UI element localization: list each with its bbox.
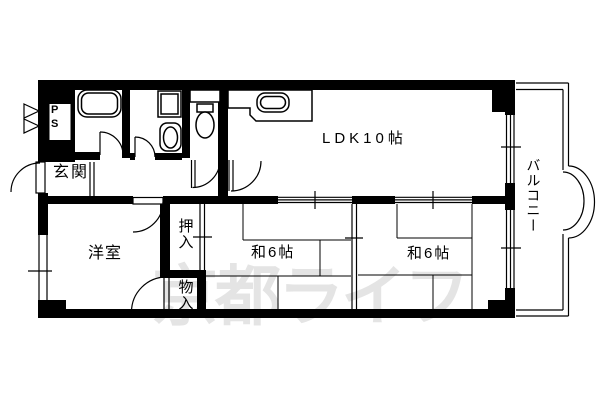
bathtub (78, 90, 121, 117)
front-door-leaf (36, 162, 45, 193)
fixtures (78, 90, 312, 151)
balcony-label: バルコニー (525, 158, 540, 264)
watermark: 京都ライフ (152, 260, 467, 333)
toilet (190, 90, 220, 138)
western-room-label: 洋室 (88, 245, 122, 263)
closet-label: 押入 (176, 218, 193, 260)
floorplan-drawing (0, 0, 600, 400)
meter-box-icon (24, 104, 39, 133)
washing-machine-pan (158, 91, 181, 117)
ldk-label: LDK10帖 (322, 131, 407, 148)
entrance-label: 玄関 (53, 164, 89, 182)
washbasin (160, 123, 181, 151)
kitchen-counter (228, 90, 312, 121)
pipe-space-label: PS (51, 104, 64, 132)
floorplan-image: 玄関 PS 洋室 LDK10帖 押入 物入 和6帖 和6帖 バルコニー 京都ライ… (0, 0, 600, 400)
